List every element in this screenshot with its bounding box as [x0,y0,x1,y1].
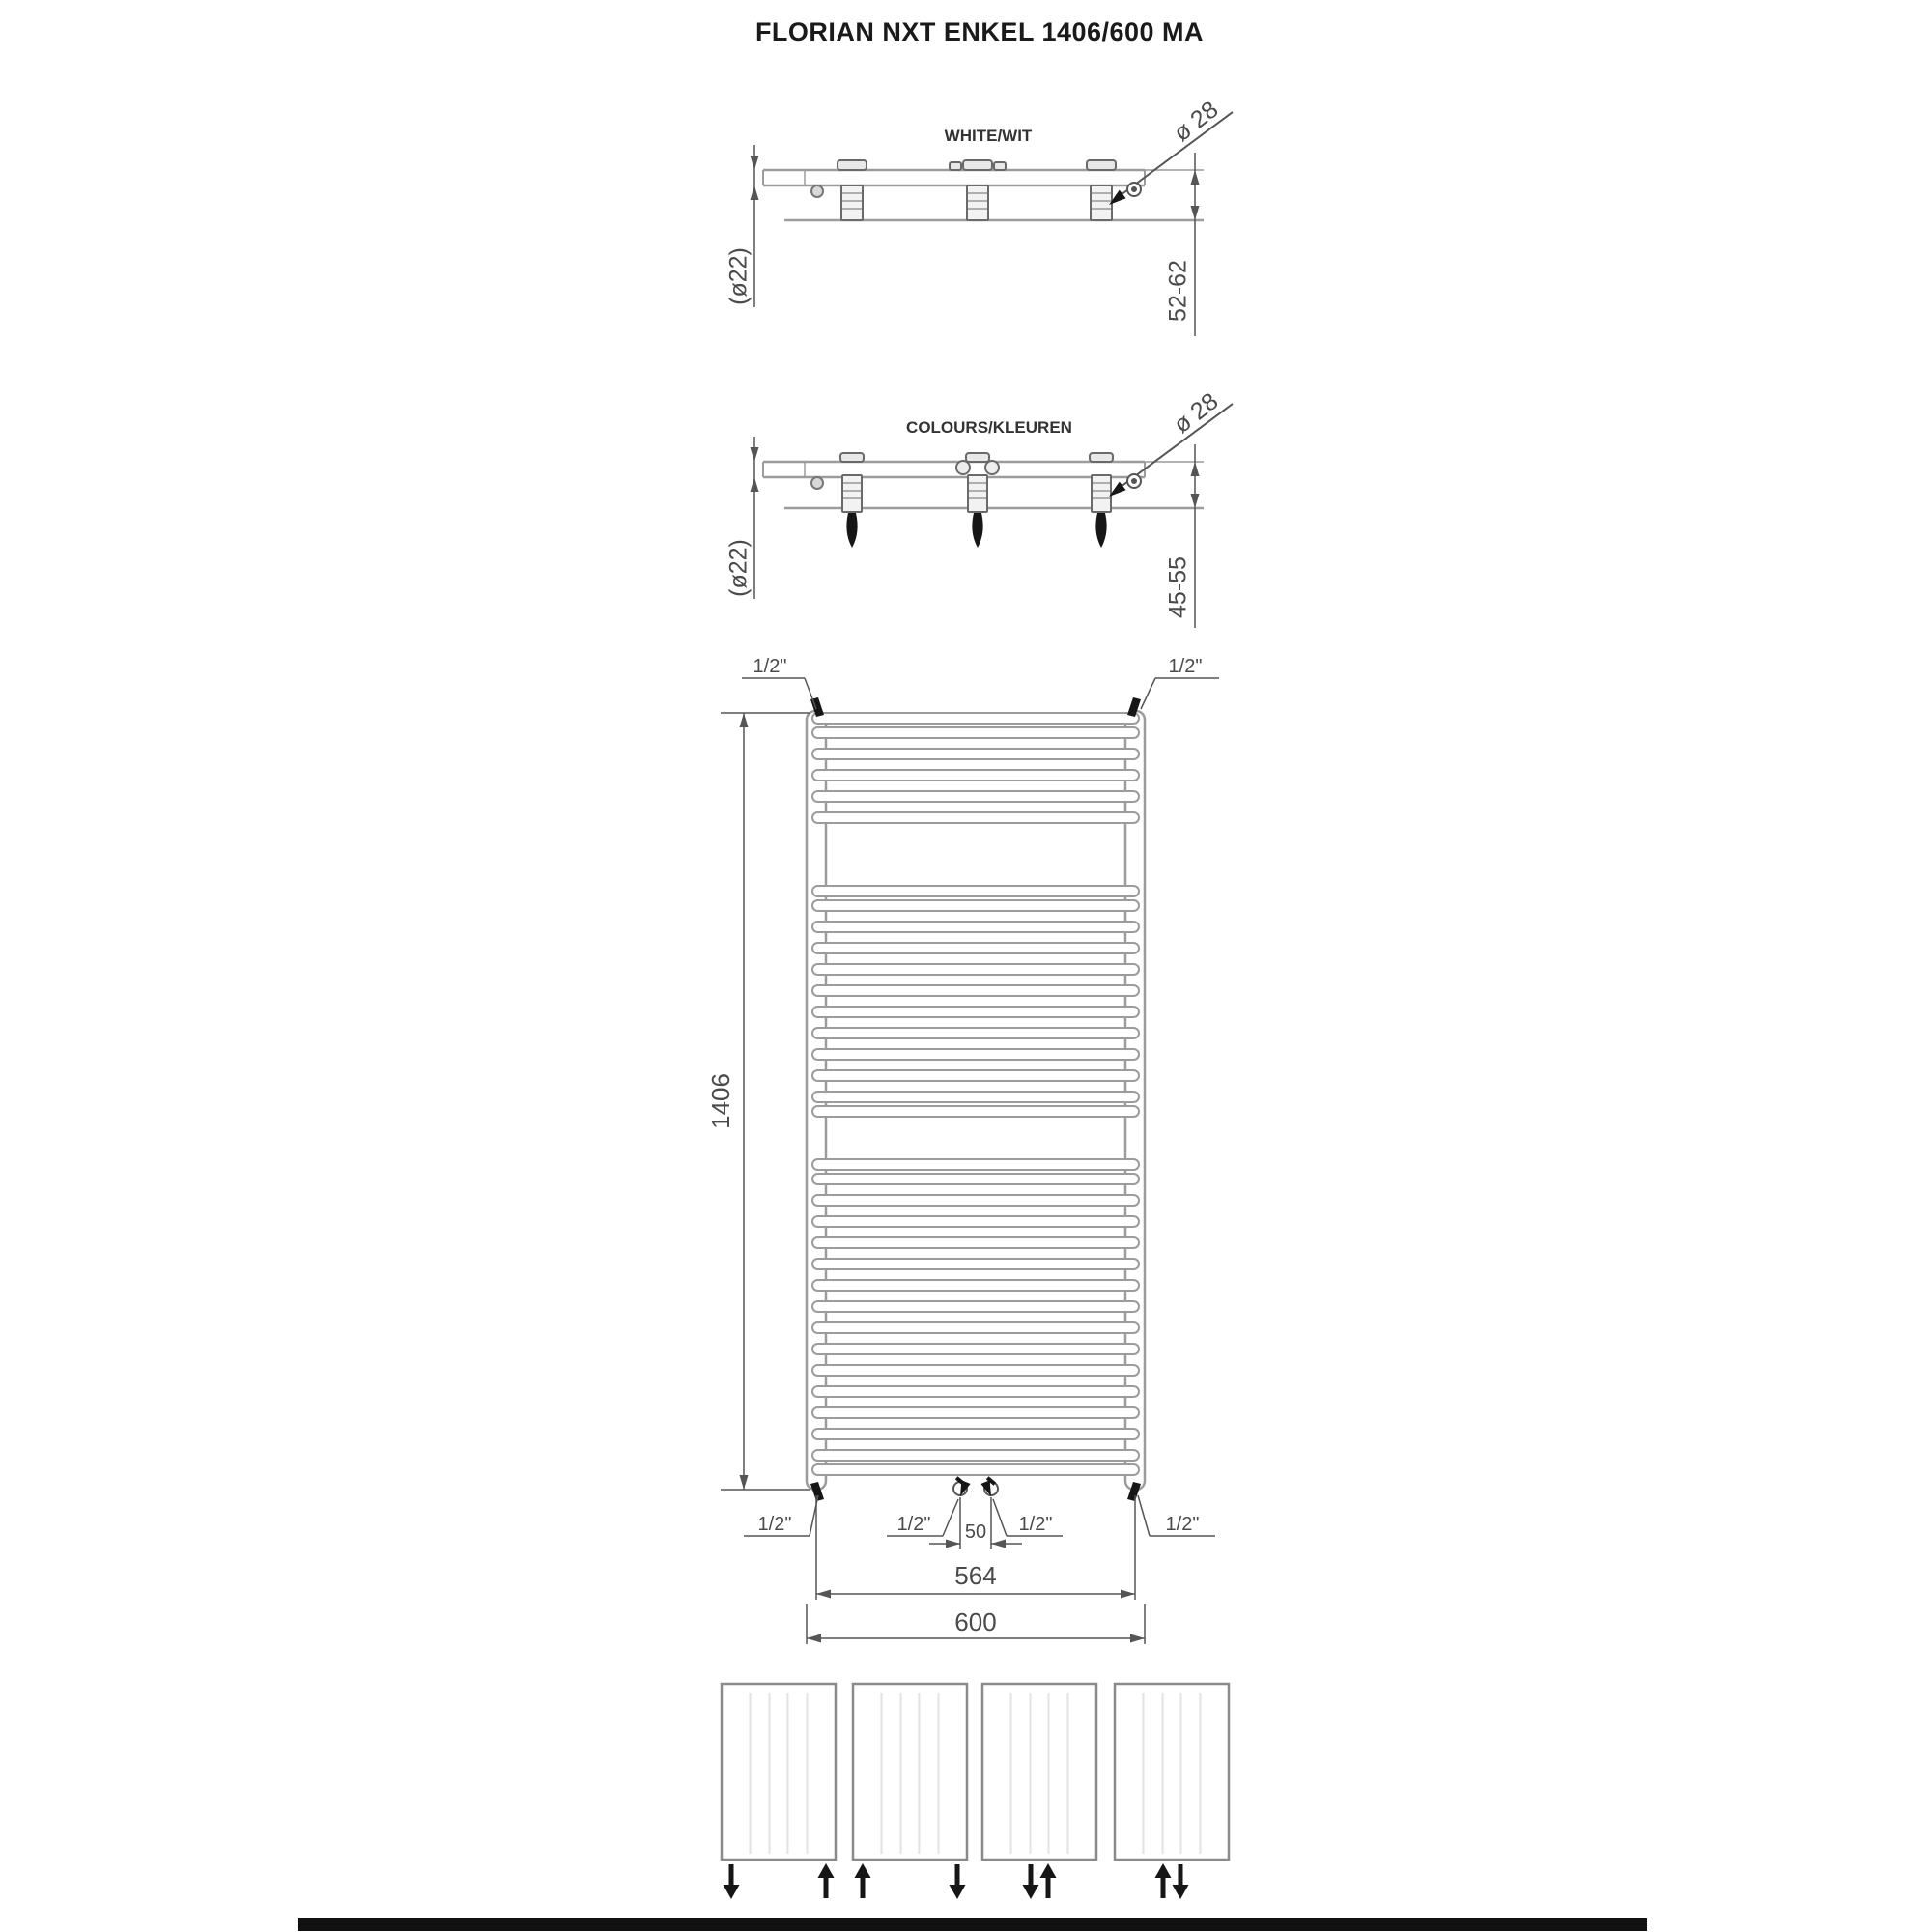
flow-down-arrow [724,1885,740,1899]
radiator-tube [812,1259,1139,1269]
radiator-tube [812,1092,1139,1102]
dimension-arrowhead [751,156,759,170]
bottom-mid-left-connection-label: 1/2" [897,1514,931,1535]
bracket-cap [966,453,989,462]
radiator-tube [812,1407,1139,1418]
connection-option [1115,1684,1229,1899]
front-view: 1406 1/2" 1/2" 1/2" 1/2" 1/2" 1/2" 50 56… [706,656,1219,1644]
bracket-cap [840,453,864,462]
mounting-clip [972,513,982,548]
radiator-tube [812,727,1139,738]
radiator-tube [812,812,1139,823]
bracket-body [842,475,862,512]
dimension-arrowhead [816,1590,831,1599]
flow-down-arrow [1023,1885,1039,1899]
vent-plug [811,477,823,489]
bottom-mid-right-connection-label: 1/2" [1019,1514,1053,1535]
radiator-tube [812,770,1139,781]
colours-wall-distance-dim: 45-55 [1165,556,1192,618]
radiator-tube [812,1344,1139,1354]
radiator-tube [812,713,1139,724]
connection-pitch-dim: 564 [954,1561,996,1590]
radiator-tube [812,1322,1139,1333]
vent-plug [811,185,823,197]
bracket-cap [1090,453,1113,462]
white-wall-distance-dim: 52-62 [1165,260,1192,322]
leader-line [993,1499,1007,1536]
leader-line [943,1499,958,1536]
bracket-body [841,185,863,220]
radiator-tube [812,1386,1139,1397]
wall-bracket [840,453,864,548]
center-spacing-dim: 50 [965,1521,986,1543]
dimension-arrowhead [946,1540,960,1548]
connection-option [982,1684,1096,1899]
bracket-cap [963,160,992,170]
drawing-title: FLORIAN NXT ENKEL 1406/600 MA [755,17,1204,46]
wall-bracket [838,160,867,220]
radiator-tube [812,1195,1139,1206]
radiator-tube [812,1216,1139,1227]
radiator-tube [812,1301,1139,1312]
radiator-tube [812,1159,1139,1170]
height-dim: 1406 [706,1073,735,1129]
white-tube-diameter-dim: (ø22) [725,247,753,305]
dimension-arrowhead [751,447,759,462]
bracket-knob [985,461,999,474]
radiator-tube [812,985,1139,996]
bottom-outer-left-connection-label: 1/2" [758,1514,792,1535]
connection-option-box [1115,1684,1229,1860]
radiator-tube [812,964,1139,975]
bracket-wing [994,162,1006,170]
bracket-wing [950,162,961,170]
bottom-outer-right-connection-label: 1/2" [1166,1514,1200,1535]
flow-up-arrow [855,1863,871,1878]
radiator-tube [812,886,1139,896]
leader-line [805,678,816,709]
flow-up-arrow [1155,1863,1172,1878]
wall-bracket [1087,160,1116,220]
white-top-view-geometry [751,112,1234,336]
top-left-connection-label: 1/2" [753,656,787,677]
dimension-arrowhead [1130,1634,1145,1643]
connection-options [722,1684,1229,1899]
radiator-tube [812,1070,1139,1081]
flow-down-arrow [1173,1885,1189,1899]
radiator-tube [812,1464,1139,1475]
radiator-tube [812,943,1139,953]
connection-option-box [982,1684,1096,1860]
colours-view-label: COLOURS/KLEUREN [906,418,1072,437]
bracket-cap [838,160,867,170]
colours-top-view-geometry [751,404,1234,628]
radiator-tube [812,900,1139,911]
bracket-body [967,185,988,220]
connection-option-box [722,1684,836,1860]
radiator-tube [812,1049,1139,1060]
radiator-tube [812,1007,1139,1017]
radiator-tube [812,1028,1139,1038]
mounting-clip [1095,513,1106,548]
connection-option-box [853,1684,967,1860]
dimension-arrowhead [740,1475,749,1490]
dimension-arrowhead [740,713,749,727]
radiator-tube [812,749,1139,759]
radiator-tube [812,1237,1139,1248]
front-view-geometry [721,678,1219,1644]
dimension-arrowhead [1191,494,1200,508]
radiator-tube [812,1106,1139,1117]
bracket-body [1092,475,1111,512]
white-top-view: WHITE/WIT (ø22) ø 28 52-62 [725,96,1233,336]
dimension-arrowhead [1121,1590,1135,1599]
wall-plug-center [1132,479,1137,484]
dimension-arrowhead [1191,462,1200,476]
technical-drawing: FLORIAN NXT ENKEL 1406/600 MA WHITE/WIT … [0,0,1932,1932]
radiator-tube [812,791,1139,802]
flow-down-arrow [950,1885,966,1899]
radiator-tube [812,1174,1139,1184]
connection-option [722,1684,836,1899]
flow-up-arrow [818,1863,835,1878]
radiator-tube [812,1450,1139,1461]
dimension-arrowhead [991,1540,1006,1548]
leader-line [1138,1495,1150,1536]
connection-option [853,1684,967,1899]
bracket-cap [1087,160,1116,170]
flow-up-arrow [1040,1863,1057,1878]
wall-bracket [950,160,1006,220]
dimension-arrowhead [751,477,759,492]
dimension-arrowhead [1191,206,1200,220]
leader-line [1141,678,1155,709]
wall-bracket [956,453,999,548]
dimension-arrowhead [751,185,759,200]
wall-bracket [1090,453,1113,548]
radiator-tube [812,1429,1139,1439]
width-dim: 600 [954,1607,996,1636]
wall-plug-center [1132,187,1137,192]
colours-top-view: COLOURS/KLEUREN (ø22) ø 28 45-55 [725,387,1233,628]
mounting-clip [846,513,857,548]
colours-tube-diameter-dim: (ø22) [725,539,753,597]
radiator-tube [812,1365,1139,1376]
radiator-tube [812,922,1139,932]
bracket-body [968,475,987,512]
white-view-label: WHITE/WIT [945,127,1033,145]
radiator-tube [812,1280,1139,1291]
bottom-border-bar [298,1918,1647,1931]
dimension-arrowhead [807,1634,821,1643]
bracket-body [1091,185,1112,220]
dimension-arrowhead [1191,170,1200,185]
bracket-knob [956,461,970,474]
top-right-connection-label: 1/2" [1169,656,1203,677]
